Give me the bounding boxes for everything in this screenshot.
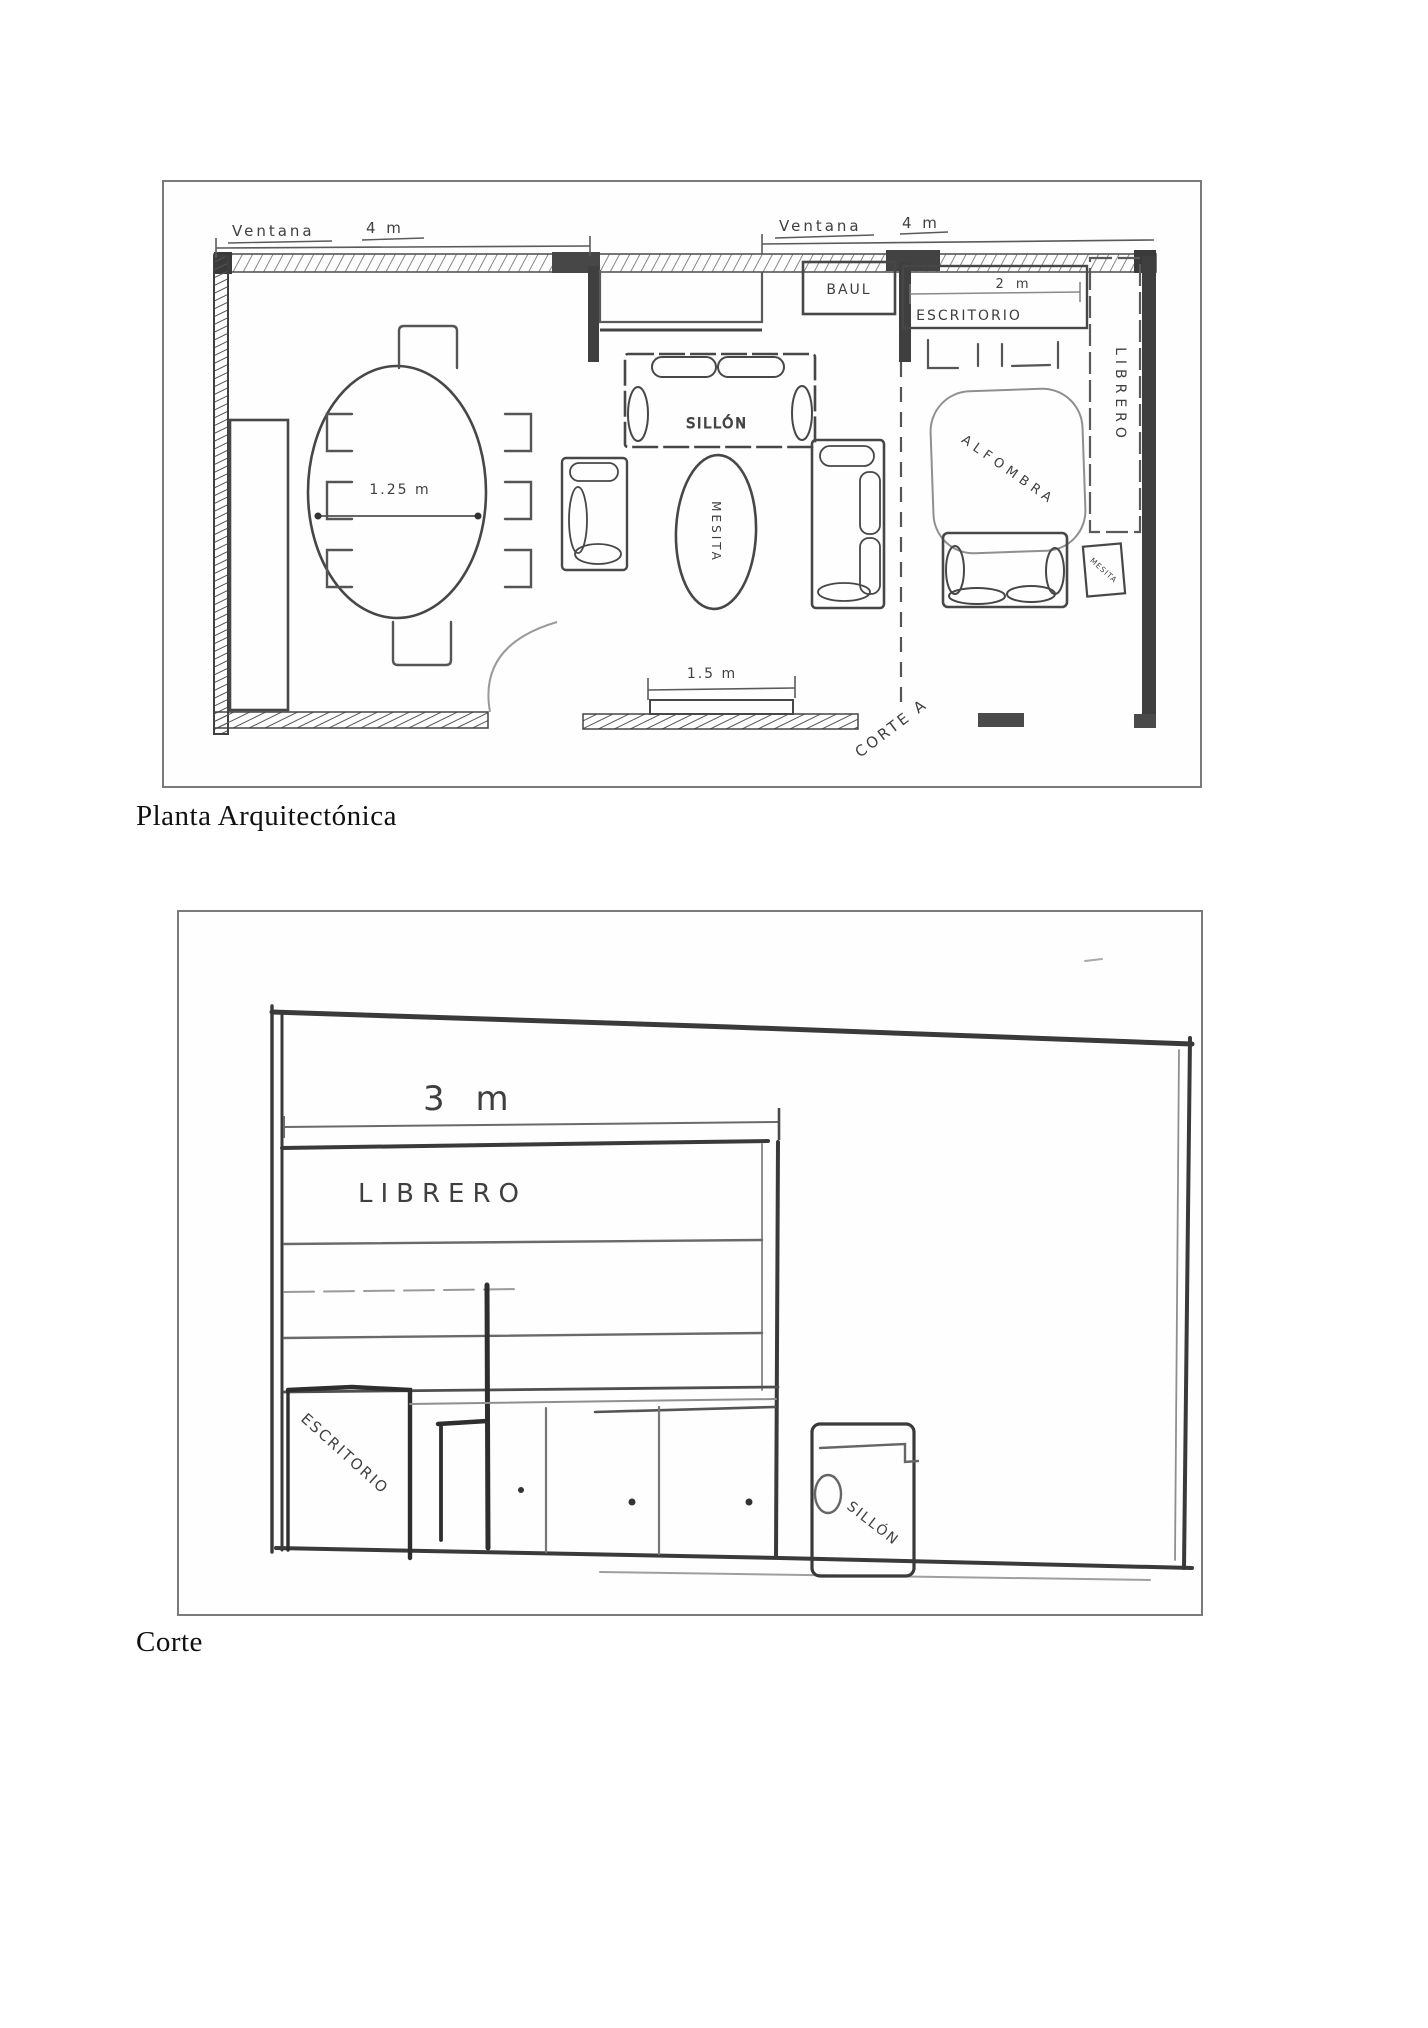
desk-dim-label: 2 m: [995, 277, 1032, 292]
bookcase-label: LIBRERO: [1112, 347, 1128, 443]
closet: [600, 270, 762, 330]
section-bookcase: LIBRERO: [282, 1141, 778, 1556]
bottom-window: 1.5 m: [648, 666, 795, 714]
section-label: CORTE A: [852, 695, 932, 761]
baul-label: BAUL: [826, 282, 871, 298]
side-table-label: MESITA: [1088, 556, 1119, 585]
floor-plan-figure: Ventana 4 m Ventana 4 m BAUL: [162, 180, 1202, 788]
left-shelf: [230, 420, 288, 710]
floor-plan-caption: Planta Arquitectónica: [136, 800, 397, 833]
ventana-left-dim: 4 m: [366, 219, 404, 237]
couch-label: SILLÓN: [686, 414, 748, 432]
rug: ALFOMBRA: [929, 387, 1087, 554]
section-desk-label: ESCRITORIO: [297, 1410, 392, 1498]
section-dim-label: 3 m: [423, 1079, 519, 1119]
section-desk: ESCRITORIO: [288, 1387, 410, 1558]
document-page: Ventana 4 m Ventana 4 m BAUL: [0, 0, 1428, 2028]
ventana-right-dim: 4 m: [902, 214, 940, 232]
section-bookcase-label: LIBRERO: [358, 1179, 527, 1209]
section-chair: [438, 1285, 488, 1548]
section-caption: Corte: [136, 1626, 203, 1659]
bookcase: LIBRERO: [1090, 258, 1140, 532]
section-armchair: SILLÓN: [812, 1424, 918, 1576]
dining-table-dim: 1.25 m: [369, 482, 430, 498]
section-armchair-label: SILLÓN: [844, 1497, 904, 1549]
floor-plan-drawing: Ventana 4 m Ventana 4 m BAUL: [164, 182, 1200, 786]
desk-chairs: [928, 340, 1058, 368]
ventana-left-label: Ventana: [232, 222, 315, 240]
rug-label: ALFOMBRA: [958, 433, 1058, 509]
section-figure: 3 m LIBRERO ESCRITORIO: [177, 910, 1203, 1616]
bottom-window-dim: 1.5 m: [687, 666, 737, 682]
window-dimension-right: [762, 232, 1154, 254]
dining-table: 1.25 m: [308, 366, 486, 618]
coffee-table-label: MESITA: [709, 501, 723, 563]
couch-vertical: [812, 440, 884, 608]
section-dimension: 3 m: [284, 1079, 779, 1140]
side-table: MESITA: [1083, 543, 1125, 596]
sofa-study: [943, 533, 1067, 607]
ventana-right-label: Ventana: [779, 217, 862, 235]
armchair: [562, 458, 627, 570]
desk: 2 m ESCRITORIO: [903, 266, 1087, 328]
desk-label: ESCRITORIO: [916, 308, 1022, 324]
coffee-table: MESITA: [673, 454, 758, 611]
section-drawing: 3 m LIBRERO ESCRITORIO: [179, 912, 1201, 1614]
door-swing-arc: [488, 622, 557, 712]
couch: SILLÓN: [625, 354, 815, 447]
